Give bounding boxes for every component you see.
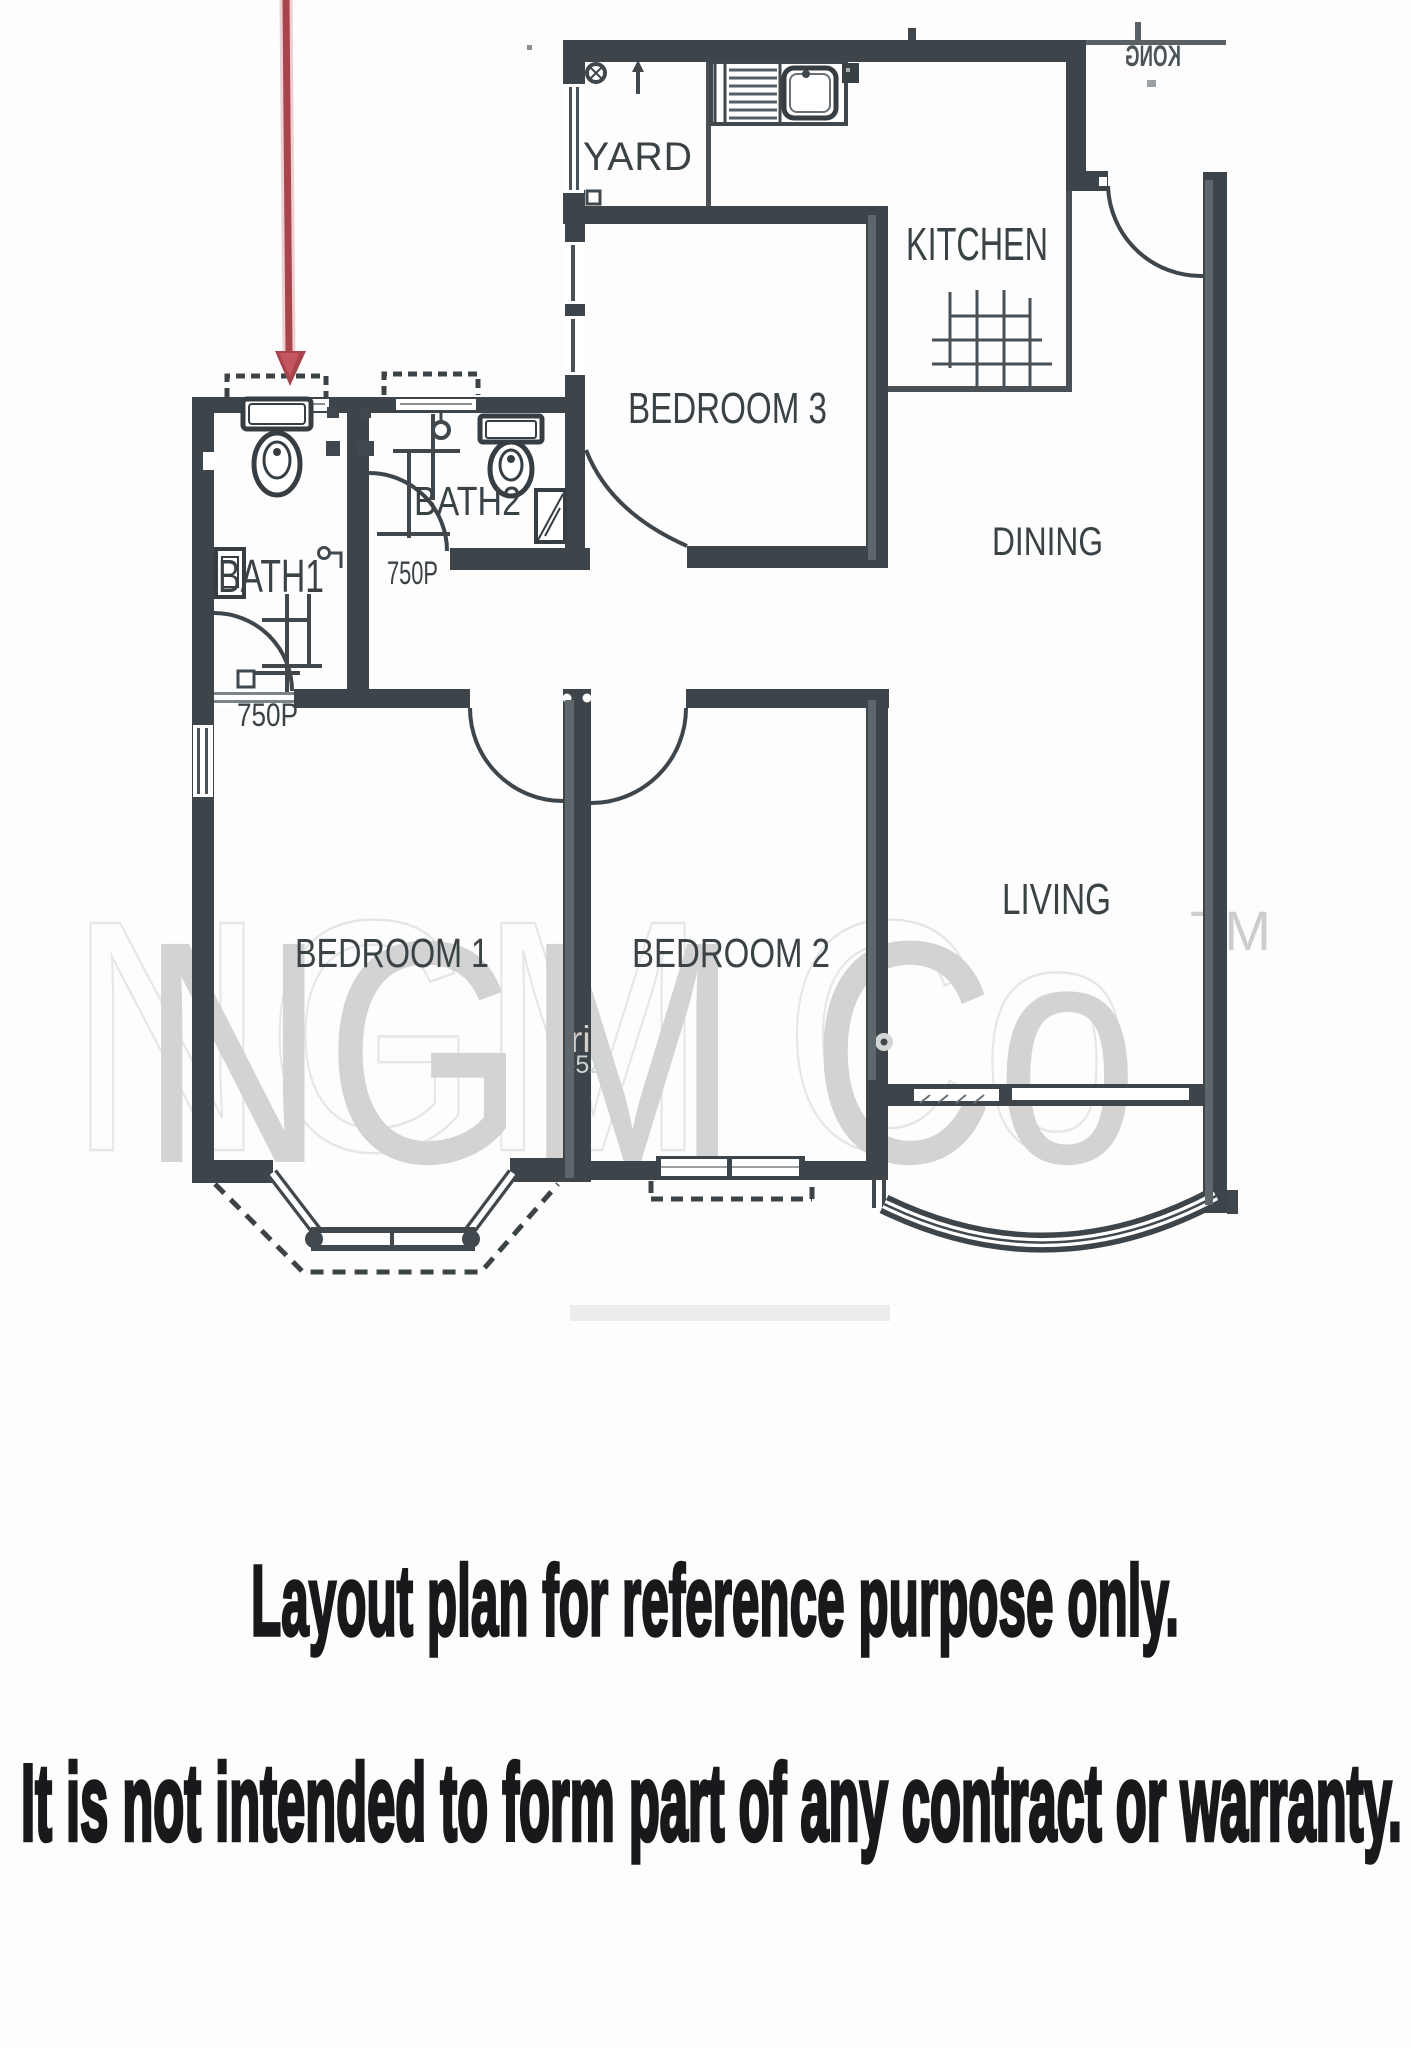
svg-text:KITCHEN: KITCHEN bbox=[906, 218, 1048, 270]
svg-text:KONG: KONG bbox=[1125, 40, 1181, 73]
svg-text:BATH2: BATH2 bbox=[414, 478, 521, 524]
svg-text:LIVING: LIVING bbox=[1002, 875, 1111, 924]
svg-text:TM: TM bbox=[1190, 899, 1271, 962]
svg-text:DINING: DINING bbox=[992, 520, 1103, 564]
svg-text:BEDROOM 2: BEDROOM 2 bbox=[632, 930, 830, 976]
svg-text:BEDROOM 1: BEDROOM 1 bbox=[295, 930, 489, 976]
svg-text:YARD: YARD bbox=[583, 135, 693, 179]
svg-text:750P: 750P bbox=[387, 555, 438, 591]
svg-text:It is not intended to form par: It is not intended to form part of any c… bbox=[21, 1742, 1402, 1864]
svg-text:BATH1: BATH1 bbox=[218, 550, 324, 602]
svg-text:750P: 750P bbox=[237, 697, 298, 733]
svg-text:Layout plan for reference purp: Layout plan for reference purpose only. bbox=[251, 1545, 1179, 1657]
svg-text:BEDROOM 3: BEDROOM 3 bbox=[628, 384, 827, 433]
